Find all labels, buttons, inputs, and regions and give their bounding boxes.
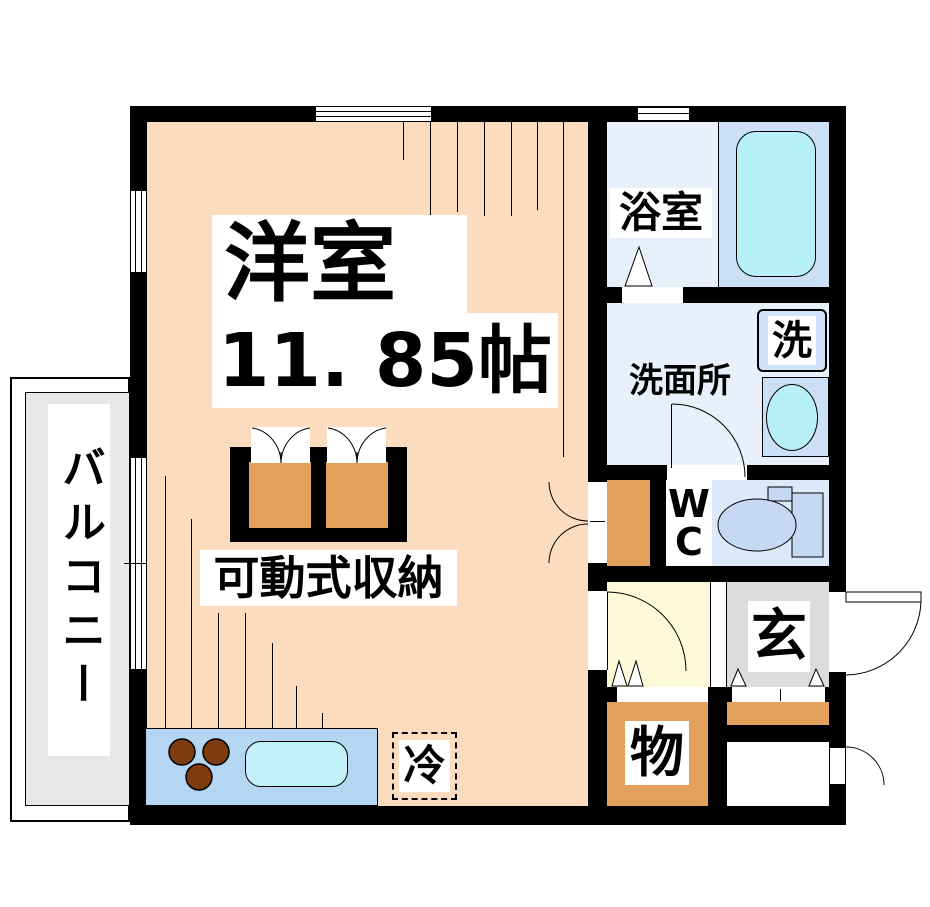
balcony-sliding-door (130, 457, 147, 670)
movable-storage-box-left (249, 462, 311, 528)
door-gap-porch (829, 747, 846, 785)
door-gap-closet (588, 482, 607, 563)
entrance-text: 玄 (751, 609, 807, 665)
closet-floor (607, 480, 650, 566)
balcony-text: バルコニー (57, 445, 101, 715)
porch-door (846, 747, 884, 785)
door-gap-entrance-cabinet (732, 687, 825, 702)
storage-room-label: 物 (625, 721, 689, 785)
entrance-label: 玄 (748, 601, 810, 672)
wall-bottom (130, 806, 846, 825)
refrigerator-text: 冷 (403, 745, 445, 787)
wc-label: W C (666, 480, 712, 566)
movable-storage-door-right (327, 427, 386, 463)
main-room-name-label: 洋室 (212, 215, 467, 313)
front-door (846, 592, 921, 675)
washroom-label: 洗面所 (614, 360, 746, 402)
wall-top (130, 106, 846, 122)
movable-storage-box-right (326, 462, 388, 528)
washing-machine-label: 洗 (768, 316, 816, 365)
porch-storage-floor (727, 742, 829, 806)
bathroom-label: 浴室 (610, 188, 712, 238)
main-room-size-label: 11. 85帖 (212, 313, 558, 408)
balcony-label: バルコニー (48, 404, 110, 756)
wall-closet-right (650, 480, 666, 566)
floor-plan: 洋室 11. 85帖 可動式収納 バルコニー 浴室 洗面所 洗 W C 玄 物 … (0, 0, 930, 907)
washing-machine-text: 洗 (772, 321, 812, 361)
movable-storage-door-left (251, 427, 310, 463)
refrigerator-label: 冷 (399, 740, 450, 792)
washroom-text: 洗面所 (629, 364, 731, 398)
window-left (130, 190, 147, 273)
bathtub (736, 131, 816, 277)
sink-bowl (766, 384, 818, 451)
door-gap-hall (588, 591, 607, 670)
wall-wc-bottom (588, 566, 846, 582)
kitchen-sink (245, 741, 348, 787)
wall-storage-porch (708, 702, 727, 806)
door-gap-washroom (667, 465, 747, 480)
hall-entrance-step (710, 582, 727, 687)
movable-storage-text: 可動式収納 (214, 555, 444, 601)
bathroom-text: 浴室 (619, 192, 703, 234)
hallway-floor (607, 582, 710, 687)
wc-text-c: C (675, 523, 703, 561)
main-room-size-text: 11. 85帖 (218, 324, 552, 398)
door-gap-storage-room (617, 687, 708, 702)
main-room-name-text: 洋室 (224, 221, 396, 307)
wall-under-cabinet (727, 725, 829, 742)
movable-storage-label: 可動式収納 (200, 550, 457, 606)
door-gap-bathroom (622, 287, 683, 303)
window-top-bathroom (637, 107, 690, 121)
storage-room-text: 物 (630, 726, 684, 780)
wc-text-w: W (668, 485, 710, 523)
window-top-main (315, 106, 432, 122)
door-gap-front (829, 592, 846, 672)
shoe-cabinet (727, 702, 829, 725)
